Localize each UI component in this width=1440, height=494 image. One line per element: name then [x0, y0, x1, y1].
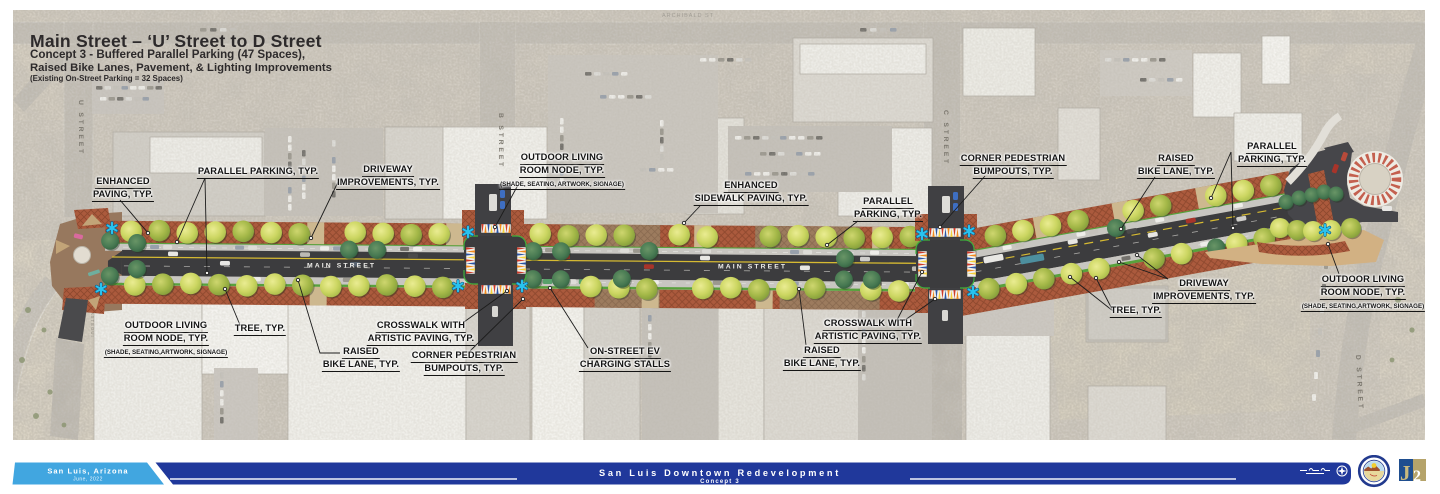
svg-text:MAIN STREET: MAIN STREET	[307, 263, 376, 270]
svg-text:C STREET: C STREET	[942, 110, 949, 166]
svg-text:U STREET: U STREET	[77, 100, 84, 156]
svg-text:J: J	[1400, 461, 1411, 485]
svg-text:San Luis Downtown Redevelopmen: San Luis Downtown Redevelopment	[599, 468, 841, 478]
svg-text:Concept 3: Concept 3	[700, 479, 740, 485]
svg-text:MAIN STREET: MAIN STREET	[718, 264, 787, 271]
svg-text:San Luis, Arizona: San Luis, Arizona	[47, 466, 128, 475]
svg-text:June, 2022: June, 2022	[73, 477, 103, 483]
svg-text:ARCHIBALD ST: ARCHIBALD ST	[662, 13, 714, 19]
svg-text:2: 2	[1413, 468, 1421, 485]
